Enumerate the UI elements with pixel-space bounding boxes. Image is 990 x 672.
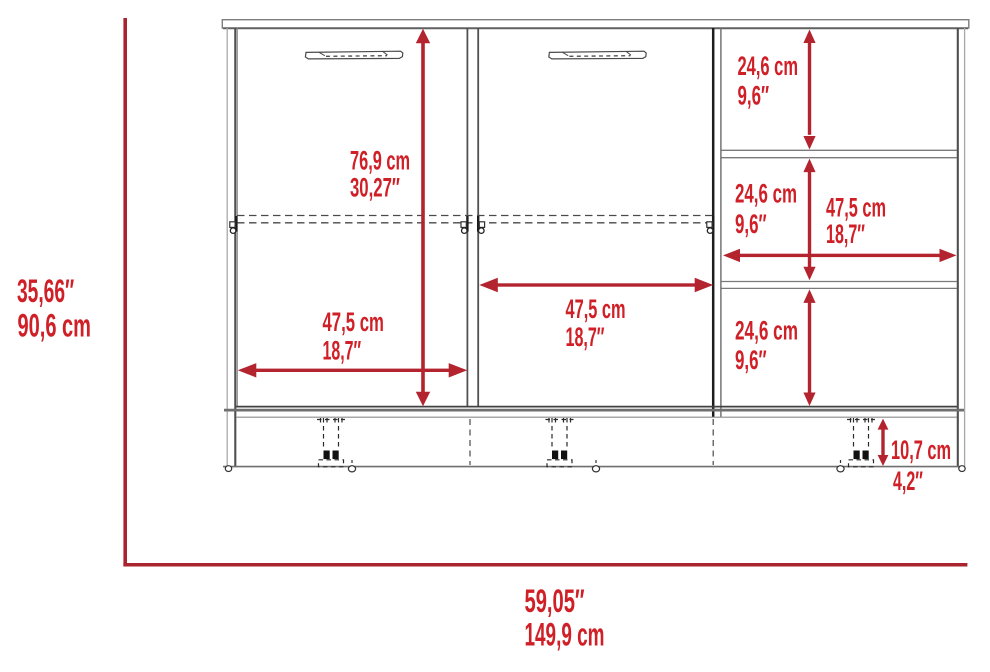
svg-text:18,7″: 18,7″ — [566, 322, 605, 352]
svg-text:9,6″: 9,6″ — [735, 345, 767, 375]
svg-text:24,6 cm: 24,6 cm — [738, 51, 798, 81]
svg-text:9,6″: 9,6″ — [738, 80, 770, 110]
svg-text:24,6 cm: 24,6 cm — [735, 179, 797, 209]
svg-text:10,7 cm: 10,7 cm — [891, 435, 951, 465]
svg-text:47,5 cm: 47,5 cm — [566, 294, 626, 324]
svg-text:47,5 cm: 47,5 cm — [323, 307, 384, 337]
svg-text:9,6″: 9,6″ — [735, 209, 767, 239]
svg-text:149,9 cm: 149,9 cm — [525, 616, 605, 653]
svg-text:59,05″: 59,05″ — [525, 583, 585, 619]
svg-text:4,2″: 4,2″ — [893, 466, 923, 496]
svg-text:18,7″: 18,7″ — [323, 335, 362, 365]
svg-text:24,6 cm: 24,6 cm — [735, 316, 798, 346]
svg-text:90,6 cm: 90,6 cm — [18, 308, 91, 344]
svg-text:30,27″: 30,27″ — [350, 172, 400, 202]
svg-text:18,7″: 18,7″ — [826, 219, 865, 249]
svg-text:76,9 cm: 76,9 cm — [350, 145, 410, 175]
svg-text:35,66″: 35,66″ — [17, 273, 74, 309]
